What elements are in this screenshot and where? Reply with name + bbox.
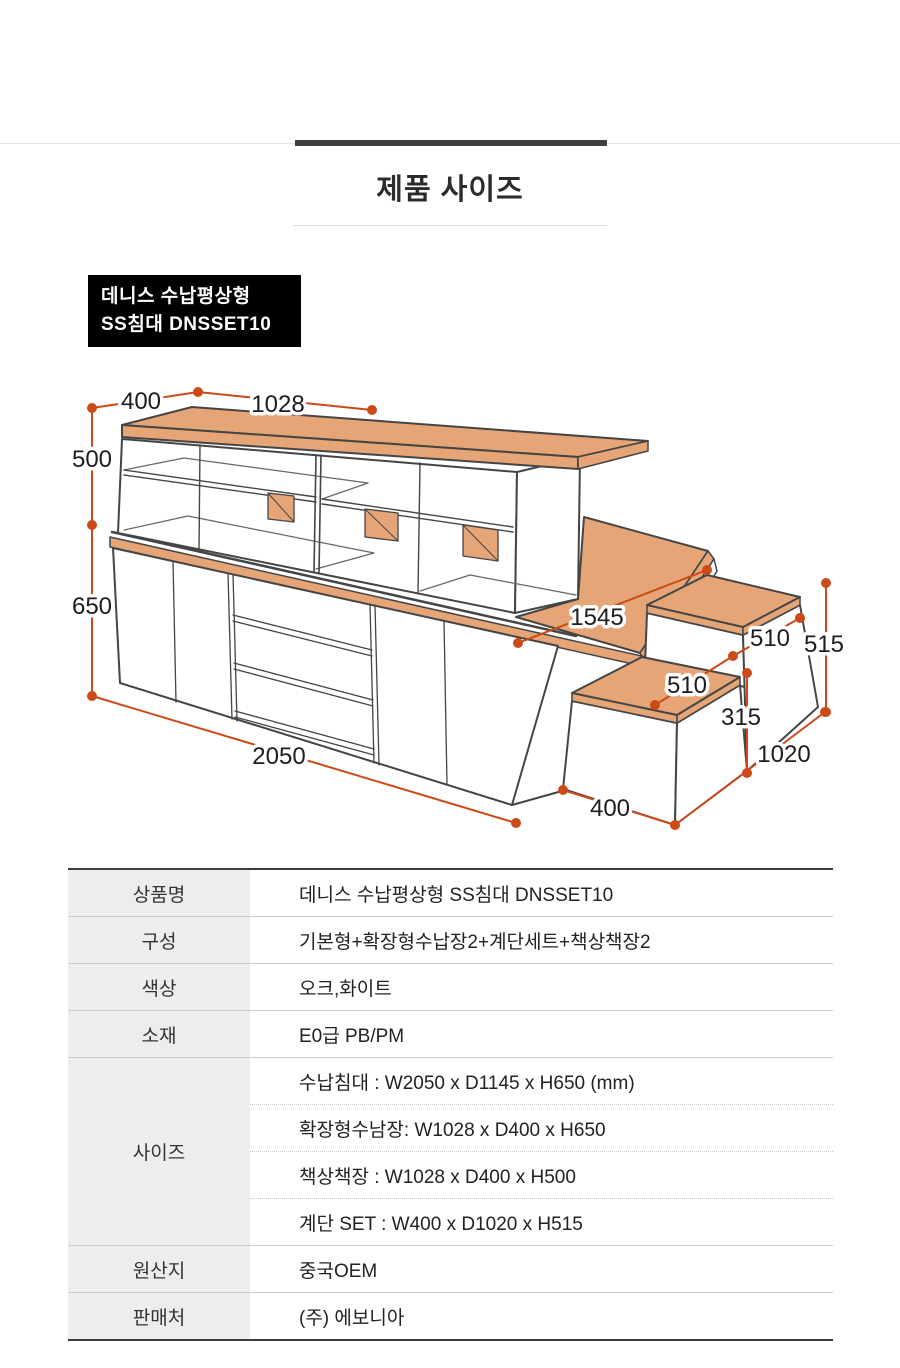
spec-label: 색상 <box>68 964 250 1010</box>
spec-row-product-name: 상품명 데니스 수납평상형 SS침대 DNSSET10 <box>68 870 833 916</box>
spec-label: 사이즈 <box>68 1058 250 1245</box>
dim-top-depth: 400 <box>121 388 161 415</box>
product-size-page: 제품 사이즈 데니스 수납평상형 SS침대 DNSSET10 <box>0 0 900 1368</box>
spec-value: 기본형+확장형수납장2+계단세트+책상책장2 <box>250 917 833 963</box>
product-label-line1: 데니스 수납평상형 <box>101 283 301 311</box>
spec-row-material: 소재 E0급 PB/PM <box>68 1010 833 1057</box>
size-value-list: 수납침대 : W2050 x D1145 x H650 (mm) 확장형수남장:… <box>250 1058 833 1245</box>
spec-label: 원산지 <box>68 1246 250 1292</box>
spec-label: 구성 <box>68 917 250 963</box>
page-title: 제품 사이즈 <box>0 166 900 208</box>
size-subrow-steps: 계단 SET : W400 x D1020 x H515 <box>250 1198 833 1245</box>
dim-top-width: 1028 <box>251 391 304 418</box>
dimension-diagram: 400 1028 500 650 2050 1545 510 515 510 3… <box>0 375 900 855</box>
spec-row-seller: 판매처 (주) 에보니아 <box>68 1292 833 1339</box>
size-subrow-bed: 수납침대 : W2050 x D1145 x H650 (mm) <box>250 1058 833 1104</box>
dim-step-width: 400 <box>590 795 630 822</box>
spec-value: 오크,화이트 <box>250 964 833 1010</box>
spec-value: 데니스 수납평상형 SS침대 DNSSET10 <box>250 870 833 916</box>
product-label-line2: SS침대 DNSSET10 <box>101 311 301 339</box>
spec-row-composition: 구성 기본형+확장형수납장2+계단세트+책상책장2 <box>68 916 833 963</box>
spec-value: E0급 PB/PM <box>250 1011 833 1057</box>
spec-row-size: 사이즈 수납침대 : W2050 x D1145 x H650 (mm) 확장형… <box>68 1057 833 1245</box>
dim-step-upper-depth: 510 <box>750 625 790 652</box>
size-subrow-extension: 확장형수남장: W1028 x D400 x H650 <box>250 1104 833 1151</box>
spec-label: 소재 <box>68 1011 250 1057</box>
dim-base-height: 650 <box>72 593 112 620</box>
spec-row-origin: 원산지 중국OEM <box>68 1245 833 1292</box>
dim-step-total-depth: 1020 <box>757 741 810 768</box>
product-label-box: 데니스 수납평상형 SS침대 DNSSET10 <box>88 275 301 347</box>
spec-row-color: 색상 오크,화이트 <box>68 963 833 1010</box>
spec-label: 상품명 <box>68 870 250 916</box>
title-underline <box>293 225 607 226</box>
dim-step-lower-depth: 510 <box>667 672 707 699</box>
dim-step-total-height: 515 <box>804 631 844 658</box>
dim-bed-edge: 1545 <box>570 604 623 631</box>
title-accent-bar <box>295 140 607 146</box>
spec-table: 상품명 데니스 수납평상형 SS침대 DNSSET10 구성 기본형+확장형수납… <box>68 868 833 1341</box>
furniture-drawing: 400 1028 500 650 2050 1545 510 515 510 3… <box>0 375 900 855</box>
dim-step-lower-height: 315 <box>721 704 761 731</box>
spec-value: 중국OEM <box>250 1246 833 1292</box>
dim-base-width: 2050 <box>252 743 305 770</box>
spec-label: 판매처 <box>68 1293 250 1339</box>
dim-shelf-height: 500 <box>72 446 112 473</box>
size-subrow-bookshelf: 책상책장 : W1028 x D400 x H500 <box>250 1151 833 1198</box>
spec-value: (주) 에보니아 <box>250 1293 833 1339</box>
